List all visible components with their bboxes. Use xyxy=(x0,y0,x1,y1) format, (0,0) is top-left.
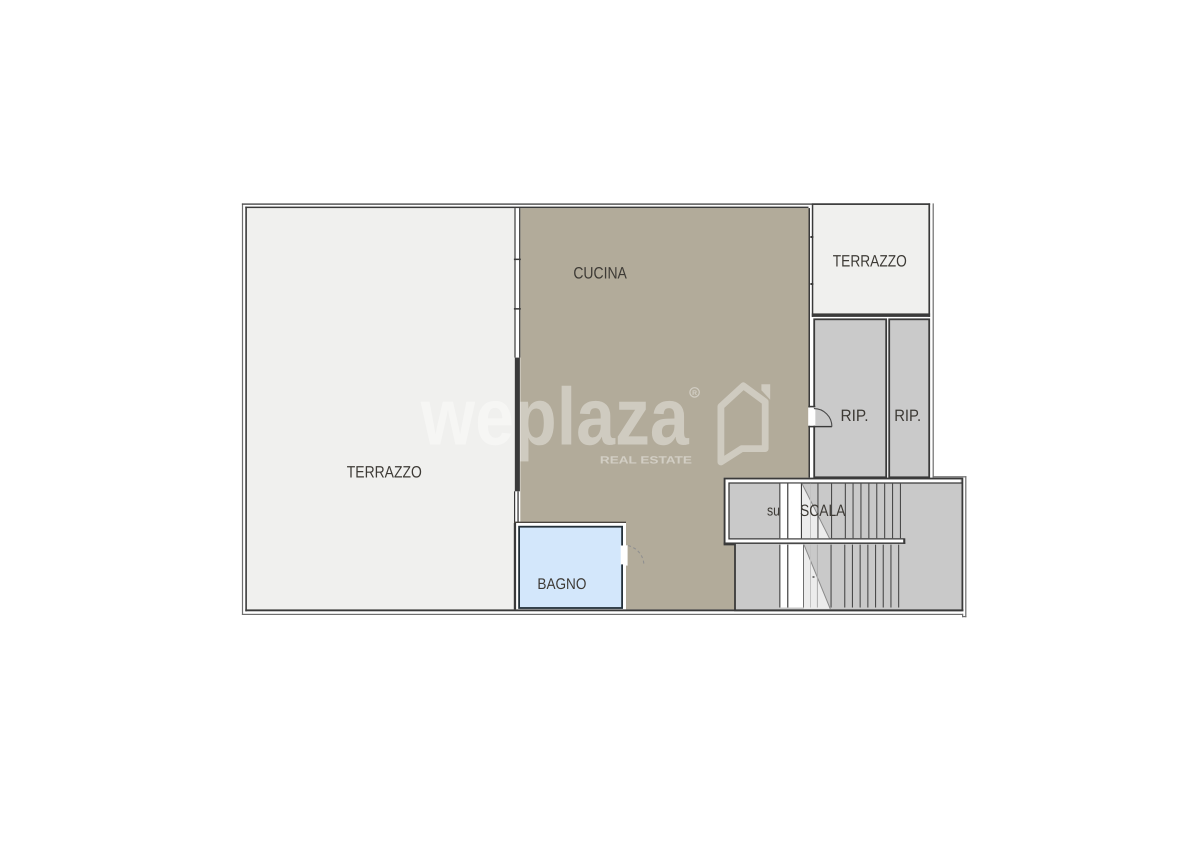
svg-text:SCALA: SCALA xyxy=(800,502,846,520)
svg-text:BAGNO: BAGNO xyxy=(537,576,586,593)
svg-text:TERRAZZO: TERRAZZO xyxy=(347,464,422,482)
svg-text:RIP.: RIP. xyxy=(894,407,921,425)
svg-text:TERRAZZO: TERRAZZO xyxy=(833,252,907,270)
svg-text:CUCINA: CUCINA xyxy=(573,264,627,282)
svg-text:RIP.: RIP. xyxy=(841,407,869,425)
svg-text:su: su xyxy=(767,502,780,519)
svg-text:REAL ESTATE: REAL ESTATE xyxy=(600,454,692,466)
svg-text:weplaza: weplaza xyxy=(420,373,690,463)
svg-text:R: R xyxy=(692,390,697,397)
